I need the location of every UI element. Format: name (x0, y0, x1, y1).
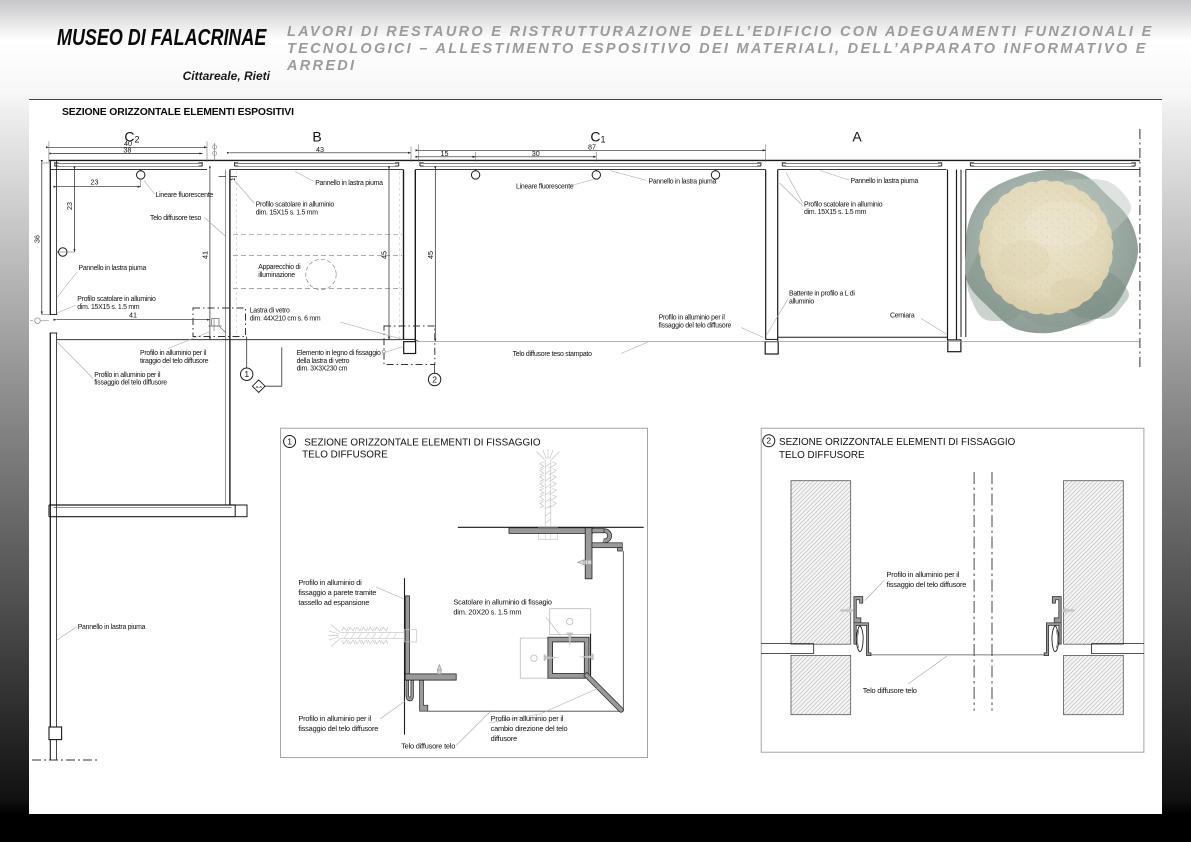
svg-text:SEZIONE ORIZZONTALE ELEMENTI D: SEZIONE ORIZZONTALE ELEMENTI DI FISSAGGI… (779, 437, 1016, 448)
svg-text:23: 23 (91, 177, 99, 186)
svg-text:15: 15 (441, 149, 449, 158)
svg-text:fissaggio del telo diffusore: fissaggio del telo diffusore (298, 724, 378, 733)
svg-text:Profilo in alluminio per il: Profilo in alluminio per il (298, 714, 371, 723)
svg-text:2: 2 (432, 375, 437, 385)
svg-text:illuminazione: illuminazione (258, 272, 295, 279)
svg-text:45: 45 (426, 251, 435, 259)
svg-text:Telo diffusore telo: Telo diffusore telo (401, 742, 455, 751)
svg-text:Pannello in lastra piuma: Pannello in lastra piuma (649, 178, 717, 185)
svg-text:Telo diffusore teso stampato: Telo diffusore teso stampato (513, 351, 592, 358)
svg-text:Elemento in legno di fissaggio: Elemento in legno di fissaggio (297, 350, 381, 357)
svg-text:Profilo in alluminio per il: Profilo in alluminio per il (491, 714, 564, 723)
svg-text:1: 1 (287, 436, 292, 446)
svg-text:cambio direzione del telo: cambio direzione del telo (491, 724, 568, 733)
svg-text:tiraggio del telo diffusore: tiraggio del telo diffusore (140, 358, 209, 365)
svg-text:dim. 44X210 cm s. 6 mm: dim. 44X210 cm s. 6 mm (250, 315, 321, 322)
svg-text:23: 23 (65, 202, 74, 210)
svg-text:dim. 15X15 s. 1.5 mm: dim. 15X15 s. 1.5 mm (256, 209, 319, 216)
svg-text:B: B (312, 129, 321, 145)
svg-text:Profilo scatolare in alluminio: Profilo scatolare in alluminio (256, 202, 335, 209)
svg-text:TELO DIFFUSORE: TELO DIFFUSORE (302, 450, 388, 461)
svg-text:2: 2 (766, 436, 771, 446)
svg-text:Scatolare in alluminio di fiss: Scatolare in alluminio di fissagio (453, 598, 551, 607)
svg-text:Profilo in alluminio di: Profilo in alluminio di (298, 578, 362, 587)
svg-text:Profilo in alluminio per il: Profilo in alluminio per il (94, 372, 161, 379)
svg-text:dim. 20X20 s. 1.5 mm: dim. 20X20 s. 1.5 mm (453, 608, 521, 617)
svg-text:Lineare fluorescente: Lineare fluorescente (156, 192, 214, 199)
svg-text:43: 43 (316, 145, 324, 154)
svg-text:della lastra di vetro: della lastra di vetro (297, 358, 350, 365)
svg-text:TELO DIFFUSORE: TELO DIFFUSORE (779, 450, 865, 461)
svg-text:45: 45 (380, 251, 389, 259)
svg-text:Pannello in lastra piuma: Pannello in lastra piuma (78, 624, 146, 631)
svg-text:36: 36 (32, 235, 41, 243)
svg-text:Pannello in lastra piuma: Pannello in lastra piuma (315, 180, 383, 187)
svg-text:A: A (852, 129, 862, 145)
svg-text:30: 30 (532, 149, 540, 158)
svg-text:1: 1 (244, 369, 249, 379)
svg-text:38: 38 (123, 146, 131, 155)
svg-text:fissaggio del telo diffusore: fissaggio del telo diffusore (94, 380, 167, 387)
svg-text:Apparecchio di: Apparecchio di (258, 264, 301, 271)
svg-text:diffusore: diffusore (491, 734, 518, 743)
svg-text:a-a: a-a (256, 384, 263, 389)
svg-text:Pannello in lastra piuma: Pannello in lastra piuma (851, 178, 919, 185)
svg-text:Lineare fluorescente: Lineare fluorescente (516, 183, 574, 190)
svg-text:Pannello in lastra piuma: Pannello in lastra piuma (79, 265, 147, 272)
svg-text:Profilo scatolare in alluminio: Profilo scatolare in alluminio (77, 296, 156, 303)
svg-text:Lastra di vetro: Lastra di vetro (250, 308, 290, 315)
svg-text:dim. 15X15 s. 1.5 mm: dim. 15X15 s. 1.5 mm (77, 304, 140, 311)
svg-text:Battente in profilo a L di: Battente in profilo a L di (789, 291, 855, 298)
svg-text:Profilo in alluminio per il: Profilo in alluminio per il (887, 570, 960, 579)
svg-text:Cerniara: Cerniara (890, 313, 915, 320)
svg-text:87: 87 (588, 142, 596, 151)
svg-text:fissaggio a parete tramite: fissaggio a parete tramite (298, 588, 376, 597)
svg-text:41: 41 (200, 251, 209, 259)
svg-text:alluminio: alluminio (789, 298, 814, 305)
svg-text:41: 41 (129, 310, 137, 319)
svg-text:Telo diffusore telo: Telo diffusore telo (863, 686, 917, 695)
svg-text:Profilo scatolare in alluminio: Profilo scatolare in alluminio (804, 201, 883, 208)
svg-text:fissaggio del telo diffusore: fissaggio del telo diffusore (887, 580, 967, 589)
svg-text:Profilo in alluminio per il: Profilo in alluminio per il (659, 315, 726, 322)
svg-text:dim. 15X15 s. 1.5 mm: dim. 15X15 s. 1.5 mm (804, 209, 867, 216)
svg-text:dim. 3X3X230 cm: dim. 3X3X230 cm (297, 366, 348, 373)
svg-text:tassello ad espansione: tassello ad espansione (298, 598, 369, 607)
svg-text:Telo diffusore teso: Telo diffusore teso (150, 215, 201, 222)
svg-text:Profilo in alluminio per il: Profilo in alluminio per il (140, 350, 207, 357)
svg-text:fissaggio del telo diffusore: fissaggio del telo diffusore (659, 322, 732, 329)
svg-text:SEZIONE ORIZZONTALE ELEMENTI D: SEZIONE ORIZZONTALE ELEMENTI DI FISSAGGI… (304, 437, 541, 448)
